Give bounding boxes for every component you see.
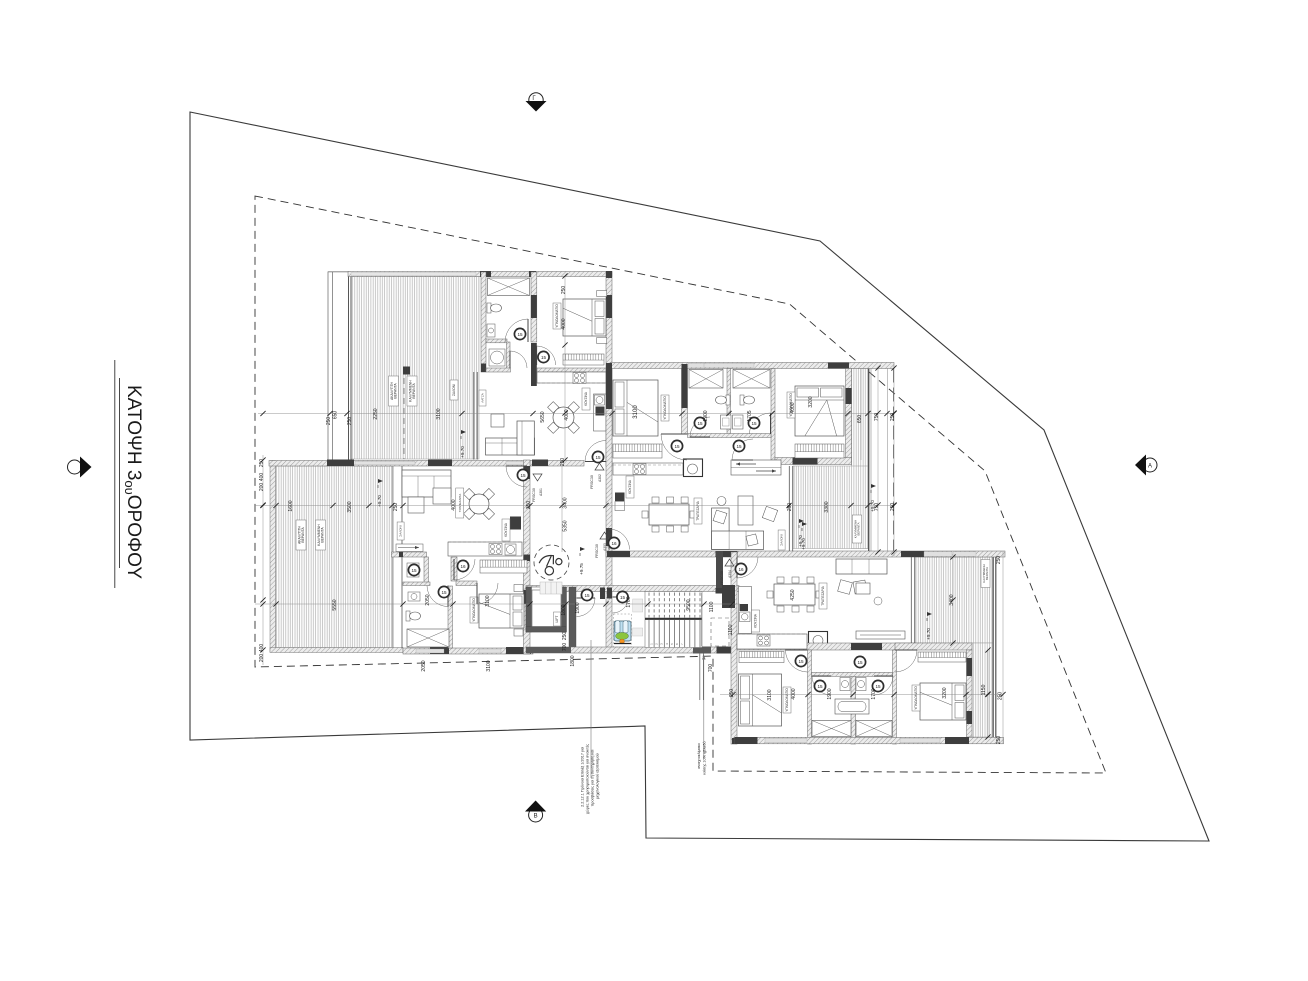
svg-text:3100: 3100 xyxy=(767,689,773,700)
svg-text:15: 15 xyxy=(595,455,601,460)
svg-text:200: 200 xyxy=(259,654,265,663)
svg-text:250: 250 xyxy=(890,413,896,422)
svg-text:3400: 3400 xyxy=(949,594,955,605)
svg-text:4000: 4000 xyxy=(790,402,796,413)
svg-text:ΛΑΤΖΑ: ΛΑΤΖΑ xyxy=(481,393,485,402)
svg-text:ΥΠΝΟΔΩΜΑΤΙΟ: ΥΠΝΟΔΩΜΑΤΙΟ xyxy=(785,688,789,712)
svg-text:ΚΟΥΖΙΝΑ: ΚΟΥΖΙΝΑ xyxy=(754,613,758,628)
svg-text:5650: 5650 xyxy=(540,411,546,422)
svg-text:ΒΕΡΑΝΤΑ: ΒΕΡΑΝΤΑ xyxy=(985,567,989,580)
svg-text:1100: 1100 xyxy=(709,601,715,612)
svg-text:Δ303: Δ303 xyxy=(603,543,607,551)
svg-text:15: 15 xyxy=(441,590,447,595)
svg-text:250: 250 xyxy=(259,459,265,468)
svg-text:1100: 1100 xyxy=(728,624,734,635)
svg-text:1150: 1150 xyxy=(981,684,987,695)
svg-text:16: 16 xyxy=(460,564,466,569)
svg-text:ΚΟΥΖΙΝΑ: ΚΟΥΖΙΝΑ xyxy=(628,479,632,494)
svg-text:4000: 4000 xyxy=(451,499,457,510)
svg-text:15: 15 xyxy=(584,593,590,598)
svg-text:3400: 3400 xyxy=(563,497,569,508)
svg-text:A: A xyxy=(1148,464,1152,470)
svg-text:3200: 3200 xyxy=(808,396,814,407)
svg-text:3300: 3300 xyxy=(824,501,830,512)
svg-text:μηχανολογικού εξοπλισμού: μηχανολογικού εξοπλισμού xyxy=(596,753,600,799)
svg-text:ΤΡΑΠΕΖΑΡΙΑ: ΤΡΑΠΕΖΑΡΙΑ xyxy=(821,585,825,605)
svg-text:15: 15 xyxy=(620,595,626,600)
svg-text:15: 15 xyxy=(857,660,863,665)
svg-text:ΒΕΡΑΝΤΑ: ΒΕΡΑΝΤΑ xyxy=(856,522,860,535)
svg-text:250: 250 xyxy=(996,556,1002,565)
svg-text:+9.70: +9.70 xyxy=(377,495,382,507)
svg-text:250: 250 xyxy=(996,736,1002,745)
svg-text:ΚΟΥΖΙΝΑ: ΚΟΥΖΙΝΑ xyxy=(504,522,508,537)
svg-text:1600: 1600 xyxy=(288,500,294,511)
svg-text:FRSC30: FRSC30 xyxy=(590,475,594,489)
svg-text:700: 700 xyxy=(562,643,568,652)
svg-text:ΣΑΛΟΝΙ: ΣΑΛΟΝΙ xyxy=(452,384,456,396)
svg-text:ΤΡΑΠΕΖΑΡΙΑ: ΤΡΑΠΕΖΑΡΙΑ xyxy=(696,500,700,520)
svg-text:16: 16 xyxy=(611,541,617,546)
svg-text:15: 15 xyxy=(541,355,547,360)
svg-text:15: 15 xyxy=(736,444,742,449)
svg-text:5550: 5550 xyxy=(332,599,338,610)
svg-text:LIFT: LIFT xyxy=(555,616,559,623)
svg-text:15: 15 xyxy=(674,444,680,449)
svg-text:3100: 3100 xyxy=(486,660,492,671)
svg-text:+9.70: +9.70 xyxy=(926,628,931,640)
svg-text:ΥΠΝΟΔΩΜΑΤΙΟ: ΥΠΝΟΔΩΜΑΤΙΟ xyxy=(472,598,476,622)
svg-text:3100: 3100 xyxy=(485,595,491,606)
svg-text:Δ381: Δ381 xyxy=(539,488,543,496)
svg-text:1800: 1800 xyxy=(570,655,576,666)
svg-text:250: 250 xyxy=(326,417,332,426)
svg-text:+9.75: +9.75 xyxy=(579,563,584,575)
svg-text:ΚΟΥΖΙΝΑ: ΚΟΥΖΙΝΑ xyxy=(584,391,588,406)
svg-text:1900: 1900 xyxy=(703,410,709,421)
svg-text:ΒΕΡΑΝΤΑ: ΒΕΡΑΝΤΑ xyxy=(301,527,305,543)
svg-text:ΥΠΝΟΔΩΜΑΤΙΟ: ΥΠΝΟΔΩΜΑΤΙΟ xyxy=(555,304,559,328)
svg-text:4250: 4250 xyxy=(790,589,796,600)
svg-text:+9.70: +9.70 xyxy=(460,446,465,458)
svg-text:ΤΡΑΠΕΖΑΡΙΑ: ΤΡΑΠΕΖΑΡΙΑ xyxy=(458,494,462,512)
svg-text:3100: 3100 xyxy=(633,405,639,419)
svg-text:ΥΠΝΟΔΩΜΑΤΙΟ: ΥΠΝΟΔΩΜΑΤΙΟ xyxy=(663,396,667,420)
svg-text:προσβάσεις για τη συντήρηση κα: προσβάσεις για τη συντήρηση και xyxy=(591,750,595,807)
svg-text:ΒΕΡΑΝΤΑ: ΒΕΡΑΝΤΑ xyxy=(412,383,416,399)
svg-text:750: 750 xyxy=(874,413,880,422)
svg-text:250: 250 xyxy=(561,286,567,295)
svg-text:9500: 9500 xyxy=(686,599,692,610)
svg-text:250: 250 xyxy=(526,501,532,510)
svg-text:200: 200 xyxy=(259,483,265,492)
svg-text:5350: 5350 xyxy=(563,520,569,531)
svg-text:+9.70: +9.70 xyxy=(798,535,803,547)
svg-text:FRSC30: FRSC30 xyxy=(532,488,536,502)
svg-text:3500: 3500 xyxy=(347,501,353,512)
svg-text:250: 250 xyxy=(560,458,566,467)
svg-text:250: 250 xyxy=(562,632,568,641)
svg-text:15: 15 xyxy=(817,684,823,689)
svg-text:2250: 2250 xyxy=(373,408,379,419)
svg-text:15: 15 xyxy=(411,568,417,573)
svg-text:2.2.12.1 Πρόνοια Επιλέξ 1/2017: 2.2.12.1 Πρόνοια Επιλέξ 1/2017 για xyxy=(581,746,585,807)
svg-text:250: 250 xyxy=(347,417,353,426)
svg-text:4000: 4000 xyxy=(791,688,797,699)
svg-text:κλίσης 10% ηβλαδό: κλίσης 10% ηβλαδό xyxy=(703,741,707,774)
svg-text:Δ304: Δ304 xyxy=(728,570,732,578)
svg-text:3200: 3200 xyxy=(942,687,948,698)
svg-text:750: 750 xyxy=(874,503,880,512)
svg-text:ΣΑΛΟΝΙ: ΣΑΛΟΝΙ xyxy=(399,525,403,536)
svg-text:400: 400 xyxy=(259,473,265,482)
svg-text:χώρες που χρησιμοποιούνται για: χώρες που χρησιμοποιούνται για ανοικτές xyxy=(586,744,590,814)
svg-text:B: B xyxy=(534,814,538,820)
svg-text:FRSC30: FRSC30 xyxy=(595,544,599,558)
svg-text:250: 250 xyxy=(787,503,793,512)
svg-text:400: 400 xyxy=(259,644,265,653)
svg-text:15: 15 xyxy=(517,332,523,337)
svg-text:2050: 2050 xyxy=(421,660,427,671)
svg-text:ανοιχτοκλίμακο: ανοιχτοκλίμακο xyxy=(697,743,701,769)
svg-text:2050: 2050 xyxy=(425,594,431,605)
svg-text:FRSC30: FRSC30 xyxy=(720,571,724,585)
svg-text:1700: 1700 xyxy=(626,596,632,607)
svg-text:1800: 1800 xyxy=(561,604,567,615)
svg-text:650: 650 xyxy=(333,411,339,420)
svg-text:15: 15 xyxy=(520,473,526,478)
svg-text:15: 15 xyxy=(798,659,804,664)
svg-text:Δ382: Δ382 xyxy=(598,474,602,482)
svg-text:16: 16 xyxy=(738,567,744,572)
svg-text:15: 15 xyxy=(875,684,881,689)
svg-text:250: 250 xyxy=(393,503,399,512)
svg-text:1900: 1900 xyxy=(827,688,833,699)
svg-text:650: 650 xyxy=(857,415,863,424)
svg-text:ΒΕΡΑΝΤΑ: ΒΕΡΑΝΤΑ xyxy=(320,527,324,543)
svg-text:4000: 4000 xyxy=(564,409,570,420)
svg-text:ΥΠΝΟΔΩΜΑΤΙΟ: ΥΠΝΟΔΩΜΑΤΙΟ xyxy=(914,686,918,710)
svg-text:1900: 1900 xyxy=(575,602,581,613)
svg-text:4000: 4000 xyxy=(561,318,567,329)
svg-text:250: 250 xyxy=(729,689,735,698)
svg-text:250: 250 xyxy=(998,692,1004,701)
svg-text:700: 700 xyxy=(708,664,714,673)
svg-text:250: 250 xyxy=(890,503,896,512)
svg-text:ΒΕΡΑΝΤΑ: ΒΕΡΑΝΤΑ xyxy=(393,383,397,399)
svg-text:3100: 3100 xyxy=(436,408,442,419)
svg-text:1700: 1700 xyxy=(871,688,877,699)
svg-text:ΣΑΛΟΝΙ: ΣΑΛΟΝΙ xyxy=(780,534,784,545)
svg-text:1705: 1705 xyxy=(747,410,753,421)
